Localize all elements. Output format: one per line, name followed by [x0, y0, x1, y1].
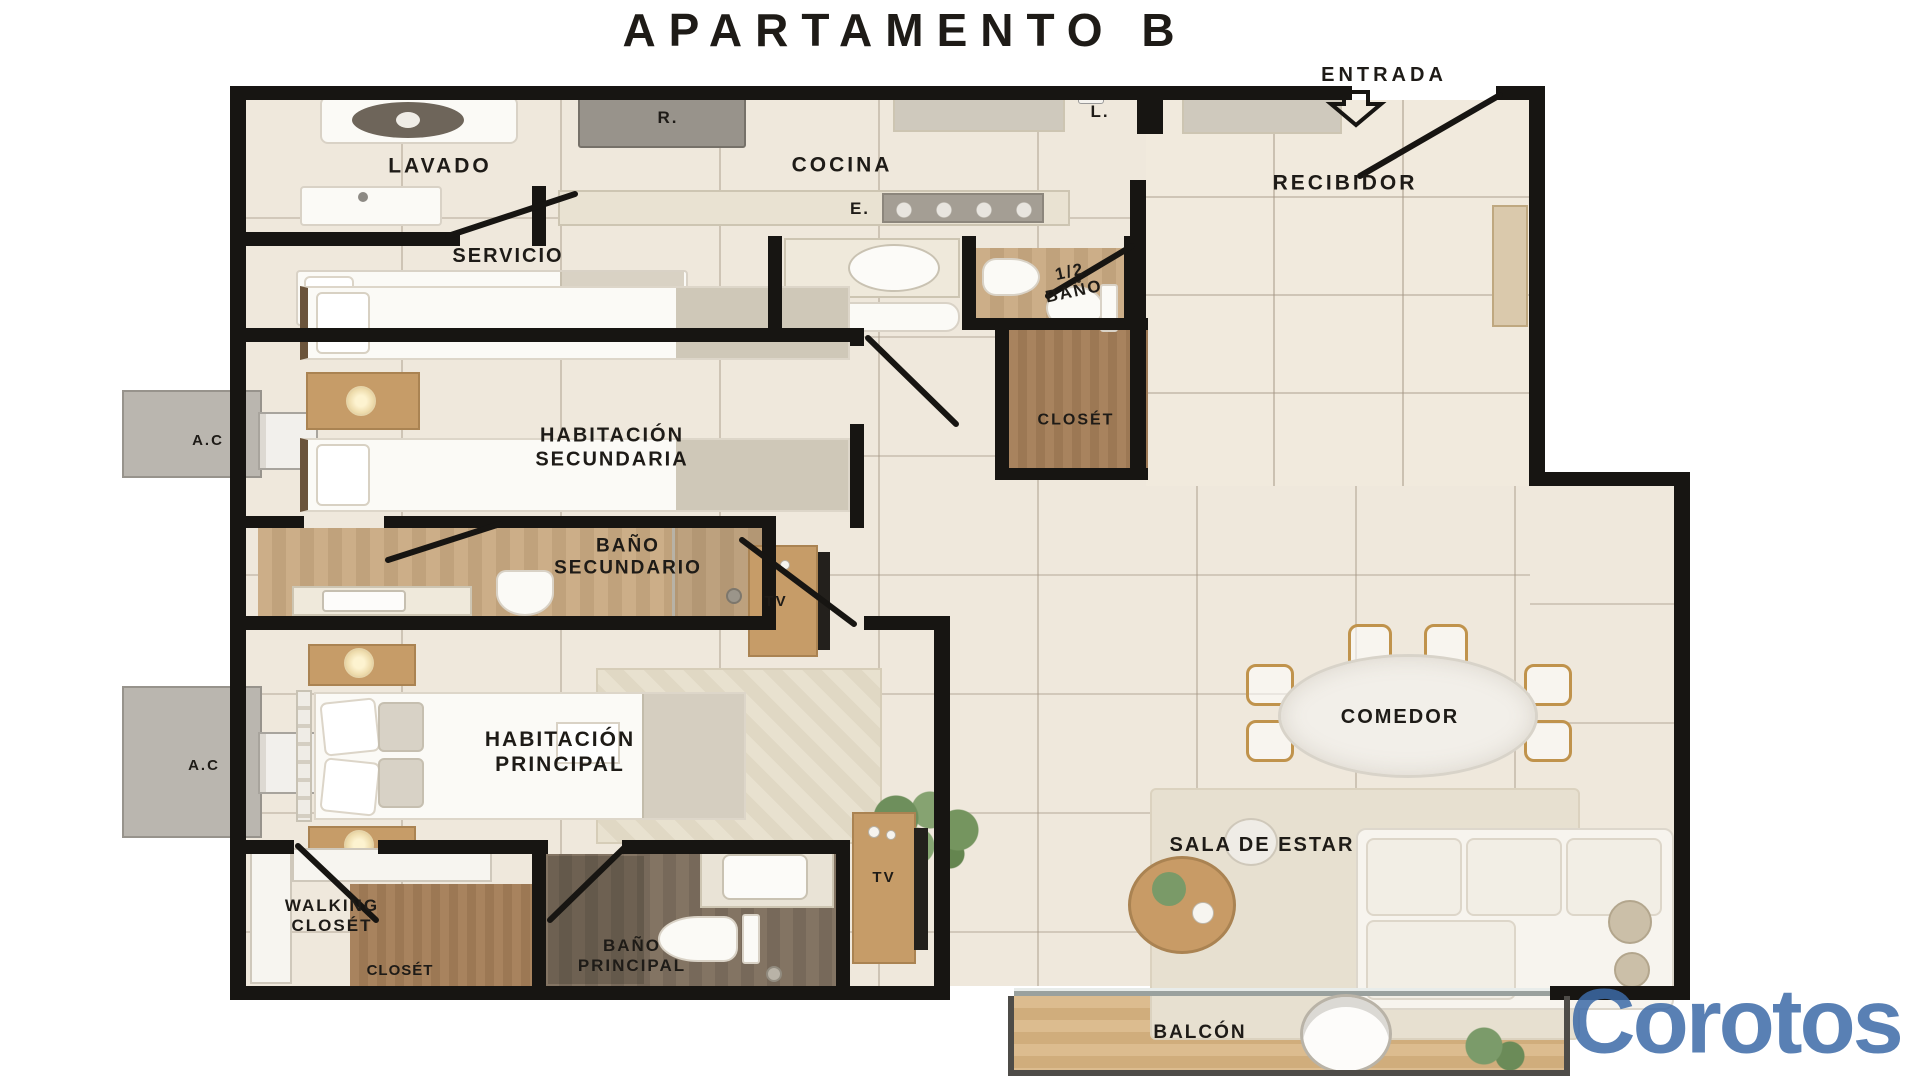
bano-sec-sink-icon — [322, 590, 406, 612]
label-cocina: COCINA — [792, 154, 893, 179]
label-walking-closet: WALKING CLOSÉT — [285, 896, 379, 936]
secondary-lamp-icon — [346, 386, 376, 416]
wall-recibidor-left-b — [1130, 180, 1146, 480]
washer-drum-center-icon — [396, 112, 420, 128]
label-comedor: COMEDOR — [1341, 706, 1459, 730]
wall-bp-right — [836, 840, 850, 1000]
wall-sala-right — [1674, 472, 1690, 986]
wall-bottomrooms-top-a — [244, 840, 294, 854]
wall-recibidor-right — [1529, 86, 1545, 486]
coffee-table — [1128, 856, 1236, 954]
label-fridge: R. — [658, 108, 679, 128]
label-sink: L. — [1090, 102, 1109, 122]
balcon-plant-icon — [1462, 1022, 1532, 1074]
lavado-sink — [300, 186, 442, 226]
coffee-table-dish-icon — [1192, 902, 1214, 924]
label-ac-2: A.C — [188, 757, 220, 775]
stove-burners-icon — [882, 193, 1044, 223]
sala-tv-icon — [914, 828, 928, 950]
hanging-chair-icon — [1300, 994, 1392, 1074]
wall-banosec-right — [762, 516, 776, 630]
sofa-cushion-1 — [1366, 838, 1462, 916]
sala-tv-console — [852, 812, 916, 964]
label-lavado: LAVADO — [388, 155, 492, 180]
master-tv-icon — [818, 552, 830, 650]
bidet-icon — [982, 258, 1040, 296]
sofa-cushion-2 — [1466, 838, 1562, 916]
master-blanket — [642, 694, 744, 818]
label-closet-pasillo: CLOSÉT — [1038, 412, 1115, 431]
master-pillow-2 — [319, 757, 380, 817]
label-entrada: ENTRADA — [1321, 64, 1447, 88]
balcon-wall-left — [1008, 996, 1014, 1076]
wall-bottomrooms-top-b — [378, 840, 548, 854]
sala-console-decor-icon — [868, 826, 880, 838]
label-bano-principal: BAÑO PRINCIPAL — [578, 936, 686, 976]
sofa-pouf-1-icon — [1608, 900, 1652, 944]
wall-bottomrooms-top-c — [622, 840, 836, 854]
master-pillow-3 — [378, 702, 424, 752]
wall-halfbath-left — [962, 236, 976, 330]
lavado-faucet-icon — [358, 192, 368, 202]
wall-lavado-bottom — [230, 232, 460, 246]
label-closet-walking: CLOSÉT — [367, 962, 434, 980]
label-hab-secundaria: HABITACIÓN SECUNDARIA — [535, 424, 688, 471]
label-sala: SALA DE ESTAR — [1170, 834, 1355, 858]
wall-step-top — [1529, 472, 1690, 486]
label-bano-secundario: BAÑO SECUNDARIO — [554, 536, 702, 581]
label-stove: E. — [850, 199, 870, 219]
sala-console-decor2-icon — [886, 830, 896, 840]
wall-banosec-top-b — [384, 516, 774, 528]
corotos-watermark: Corotos — [1569, 970, 1901, 1075]
shower-head-icon — [726, 588, 742, 604]
closet-pasillo-floor — [1009, 330, 1148, 468]
label-hab-principal: HABITACIÓN PRINCIPAL — [485, 728, 635, 778]
wall-left — [230, 86, 246, 1000]
wall-secundaria-right-b — [850, 424, 864, 528]
wall-halfbath-bottom — [962, 318, 1148, 330]
label-servicio: SERVICIO — [452, 245, 563, 269]
master-console-decor2-icon — [780, 560, 790, 570]
secondary-bed-2-pillow — [316, 444, 370, 506]
label-recibidor: RECIBIDOR — [1273, 172, 1418, 197]
wall-recibidor-left-a — [1137, 86, 1163, 134]
toilet-bano-sec-icon — [496, 570, 554, 616]
wall-banosec-bottom — [244, 616, 776, 630]
recibidor-console — [1492, 205, 1528, 327]
label-balcon: BALCÓN — [1153, 1022, 1246, 1044]
wall-tv-divider — [934, 616, 950, 1000]
label-tv-sala: TV — [872, 869, 895, 887]
toilet-bp-tank-icon — [742, 914, 760, 964]
wall-servicio-secundaria — [244, 328, 864, 342]
label-tv-master: TV — [764, 593, 787, 611]
label-ac-1: A.C — [192, 432, 224, 450]
master-pillow-1 — [319, 697, 380, 757]
wall-secundaria-right-a — [850, 330, 864, 346]
secondary-bed-1-blanket — [676, 288, 848, 358]
page-title: APARTAMENTO B — [622, 3, 1187, 57]
master-headboard — [296, 690, 312, 822]
coffee-table-plant-icon — [1152, 872, 1186, 906]
halfbath-vanity-sink-icon — [848, 244, 940, 292]
wall-servicio-vanity — [768, 236, 782, 330]
bp-sink-icon — [722, 854, 808, 900]
floorplan-canvas: APARTAMENTO B ENTRADA LAVADO R. COCINA L… — [0, 0, 1920, 1080]
wall-closet-left — [995, 330, 1009, 468]
secondary-bed-1-pillow — [316, 292, 370, 354]
wall-banosec-top-a — [244, 516, 304, 528]
wall-closet-bottom — [995, 468, 1148, 480]
sliding-door — [1014, 988, 1564, 996]
secondary-bed-2-blanket — [676, 440, 848, 510]
wall-cocina-stub — [532, 186, 546, 246]
master-lamp-top-icon — [344, 648, 374, 678]
balcon-wall-bottom — [1008, 1070, 1570, 1076]
bp-accessory-icon — [766, 966, 782, 982]
sofa-cushion-3 — [1566, 838, 1662, 916]
master-pillow-4 — [378, 758, 424, 808]
recibidor-floor — [1146, 100, 1530, 486]
wall-wc-bp-divider — [532, 840, 546, 1000]
wall-top-main — [230, 86, 1352, 100]
